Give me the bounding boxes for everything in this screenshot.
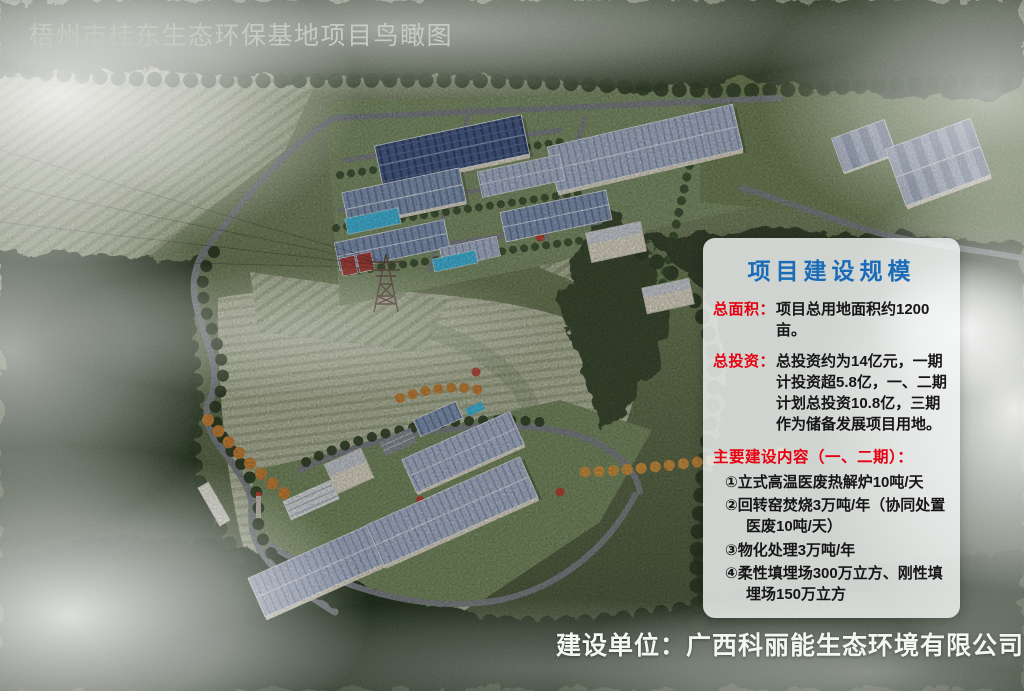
project-info-panel: 项目建设规模 总面积： 项目总用地面积约1200亩。 总投资： 总投资约为14亿… bbox=[703, 238, 960, 618]
total-investment-row: 总投资： 总投资约为14亿元，一期计投资超5.8亿，一、二期计划总投资10.8亿… bbox=[713, 351, 950, 436]
list-item: ④柔性填埋场300万立方、刚性填埋场150万立方 bbox=[725, 563, 950, 606]
total-area-value: 项目总用地面积约1200亩。 bbox=[776, 299, 950, 342]
birdseye-poster: 梧州市桂东生态环保基地项目鸟瞰图 项目建设规模 总面积： 项目总用地面积约120… bbox=[0, 0, 1024, 691]
list-item: ①立式高温医废热解炉10吨/天 bbox=[725, 472, 950, 493]
construction-unit-caption: 建设单位：广西科丽能生态环境有限公司 bbox=[556, 626, 1024, 662]
total-area-row: 总面积： 项目总用地面积约1200亩。 bbox=[713, 299, 950, 342]
total-area-label: 总面积： bbox=[713, 299, 776, 342]
total-investment-value: 总投资约为14亿元，一期计投资超5.8亿，一、二期计划总投资10.8亿，三期作为… bbox=[776, 351, 950, 436]
page-title: 梧州市桂东生态环保基地项目鸟瞰图 bbox=[29, 16, 453, 52]
list-item: ②回转窑焚烧3万吨/年（协同处置医废10吨/天） bbox=[725, 495, 950, 538]
list-item: ③物化处理3万吨/年 bbox=[725, 540, 950, 561]
total-investment-label: 总投资： bbox=[713, 351, 776, 436]
panel-title: 项目建设规模 bbox=[713, 252, 950, 286]
main-construction-heading: 主要建设内容（一、二期）： bbox=[713, 445, 950, 467]
construction-items: ①立式高温医废热解炉10吨/天 ②回转窑焚烧3万吨/年（协同处置医废10吨/天）… bbox=[713, 472, 950, 606]
